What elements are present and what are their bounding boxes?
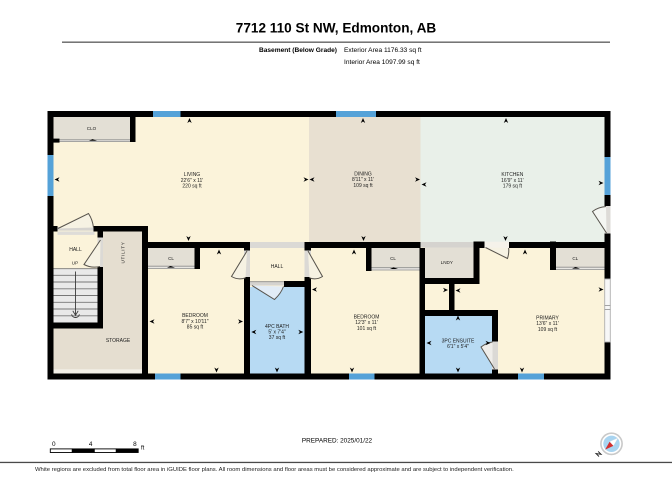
svg-text:109 sq ft: 109 sq ft bbox=[538, 327, 558, 333]
svg-text:LNDY: LNDY bbox=[441, 260, 453, 265]
svg-text:Exterior Area 1176.33 sq ft: Exterior Area 1176.33 sq ft bbox=[344, 47, 422, 54]
svg-text:0: 0 bbox=[52, 441, 56, 448]
svg-text:CL: CL bbox=[572, 256, 578, 261]
svg-text:8: 8 bbox=[133, 441, 137, 448]
svg-text:CL: CL bbox=[168, 256, 174, 261]
svg-text:4: 4 bbox=[89, 441, 93, 448]
svg-text:White regions are excluded fro: White regions are excluded from total fl… bbox=[35, 467, 514, 473]
svg-text:179 sq ft: 179 sq ft bbox=[503, 184, 523, 190]
svg-text:STORAGE: STORAGE bbox=[106, 338, 131, 344]
svg-text:Interior Area 1097.99 sq ft: Interior Area 1097.99 sq ft bbox=[344, 59, 420, 66]
svg-text:37 sq ft: 37 sq ft bbox=[269, 335, 286, 341]
svg-text:HALL: HALL bbox=[271, 264, 284, 270]
svg-text:HALL: HALL bbox=[69, 247, 82, 253]
svg-text:109 sq ft: 109 sq ft bbox=[353, 183, 373, 189]
svg-text:PREPARED: 2025/01/22: PREPARED: 2025/01/22 bbox=[302, 438, 373, 445]
svg-text:7712 110 St NW, Edmonton, AB: 7712 110 St NW, Edmonton, AB bbox=[236, 21, 437, 36]
svg-text:CL: CL bbox=[390, 256, 396, 261]
svg-text:6'1" x 5'4": 6'1" x 5'4" bbox=[447, 344, 469, 350]
svg-text:UP: UP bbox=[72, 261, 78, 266]
svg-text:85 sq ft: 85 sq ft bbox=[187, 325, 204, 331]
svg-text:101 sq ft: 101 sq ft bbox=[357, 326, 377, 332]
svg-text:ft: ft bbox=[141, 446, 145, 452]
svg-text:Basement (Below Grade): Basement (Below Grade) bbox=[259, 47, 337, 54]
svg-text:220 sq ft: 220 sq ft bbox=[182, 183, 202, 189]
svg-text:CLO: CLO bbox=[87, 126, 97, 131]
svg-text:UTILITY: UTILITY bbox=[120, 241, 125, 263]
